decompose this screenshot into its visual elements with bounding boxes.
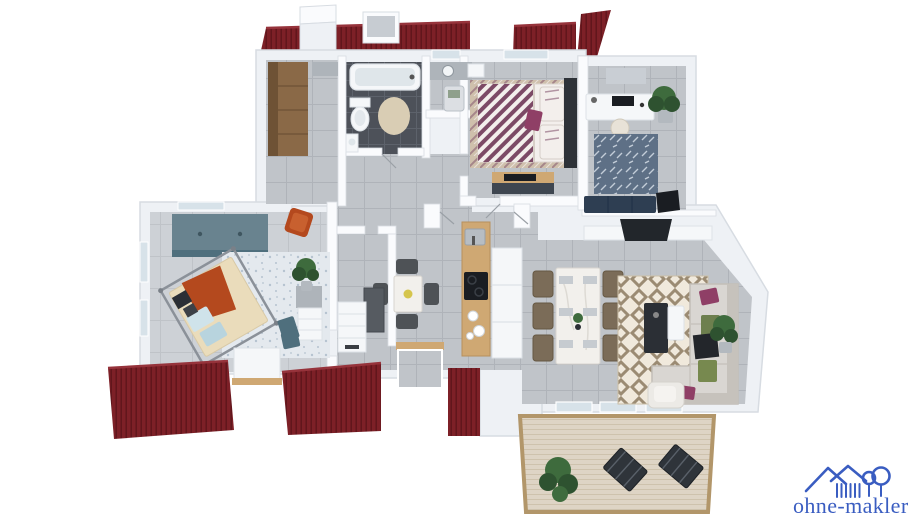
floorplan-render: ohne-makler xyxy=(0,0,924,520)
floorplan-screenshot: ohne-makler xyxy=(0,0,924,520)
wall-bath-bottom-b xyxy=(398,148,424,156)
watermark-logo: ohne-makler xyxy=(793,466,909,518)
wall-kitchen-stub-left xyxy=(424,204,440,228)
toilet xyxy=(350,98,370,131)
bath-sink xyxy=(346,134,358,152)
wardrobe-wood-side xyxy=(268,62,278,156)
utility-sink xyxy=(443,66,454,77)
wardrobe-teal xyxy=(172,214,268,257)
desk-drawers xyxy=(298,308,322,340)
staircase xyxy=(338,302,366,352)
office-mat xyxy=(606,68,646,84)
entry-sideboard xyxy=(312,62,338,76)
cooktop xyxy=(464,272,488,300)
coffee-table xyxy=(644,303,668,353)
bowl-3 xyxy=(467,333,474,340)
armchair-white xyxy=(648,382,684,408)
headboard xyxy=(564,78,577,168)
dark-cabinet xyxy=(364,288,384,332)
bowl-1 xyxy=(468,311,478,321)
nightstand xyxy=(468,64,484,77)
laundry-basket xyxy=(444,86,464,111)
pillow-1 xyxy=(540,87,564,121)
roof-bottom-left-1 xyxy=(108,361,234,439)
dormer xyxy=(232,348,282,385)
tray-table xyxy=(668,306,684,340)
kitchen-island xyxy=(462,222,490,356)
pillow-2 xyxy=(540,125,564,159)
dormer-sill xyxy=(232,378,282,385)
wall-stairroom-top-a xyxy=(337,226,365,234)
logo-text: ohne-makler xyxy=(793,493,909,518)
wall-bedroom-bottom-a xyxy=(460,196,476,206)
centerpiece-plant xyxy=(573,313,583,323)
double-bed xyxy=(478,78,577,168)
bowl-2 xyxy=(474,326,485,337)
office-side-console xyxy=(656,190,680,213)
terrace xyxy=(520,416,714,512)
bed-bench xyxy=(492,172,554,194)
wall-office-left xyxy=(578,56,588,210)
terrace-door-1 xyxy=(556,402,592,412)
office-rug xyxy=(594,134,658,194)
office-desk xyxy=(586,94,654,120)
window-left-wing-top xyxy=(178,202,224,210)
wall-stairroom-top-b xyxy=(378,226,396,234)
roof-entrance-strip xyxy=(448,368,480,436)
window-left-wing-2 xyxy=(140,300,148,336)
chair-e xyxy=(424,283,439,305)
loggia-floor xyxy=(398,350,442,388)
kitchen-cabinets xyxy=(492,248,522,358)
window-utility xyxy=(432,50,460,59)
loggia-below xyxy=(396,342,444,388)
wall-bath-right xyxy=(422,56,430,158)
tv-screen xyxy=(620,219,672,241)
window-bedroom xyxy=(504,50,548,59)
wall-bedroom-bottom-b xyxy=(500,196,586,206)
wall-bath-left xyxy=(338,56,346,206)
table-flowers xyxy=(404,290,413,299)
window-left-wing-1 xyxy=(140,242,148,282)
chair-s xyxy=(396,314,418,329)
floor-hall-upper xyxy=(330,154,472,214)
house-roof-inner xyxy=(831,466,866,481)
roof-bottom-left-2 xyxy=(282,363,381,435)
laptop xyxy=(612,96,634,106)
dining-table xyxy=(556,268,600,364)
sofa-pillow-green-2 xyxy=(698,360,717,382)
loggia-rail xyxy=(396,342,444,350)
chair-n xyxy=(396,259,418,274)
skylight-window xyxy=(363,12,399,43)
bathtub-faucet xyxy=(410,75,415,80)
bath-rug xyxy=(378,97,410,135)
chimney xyxy=(300,5,336,56)
